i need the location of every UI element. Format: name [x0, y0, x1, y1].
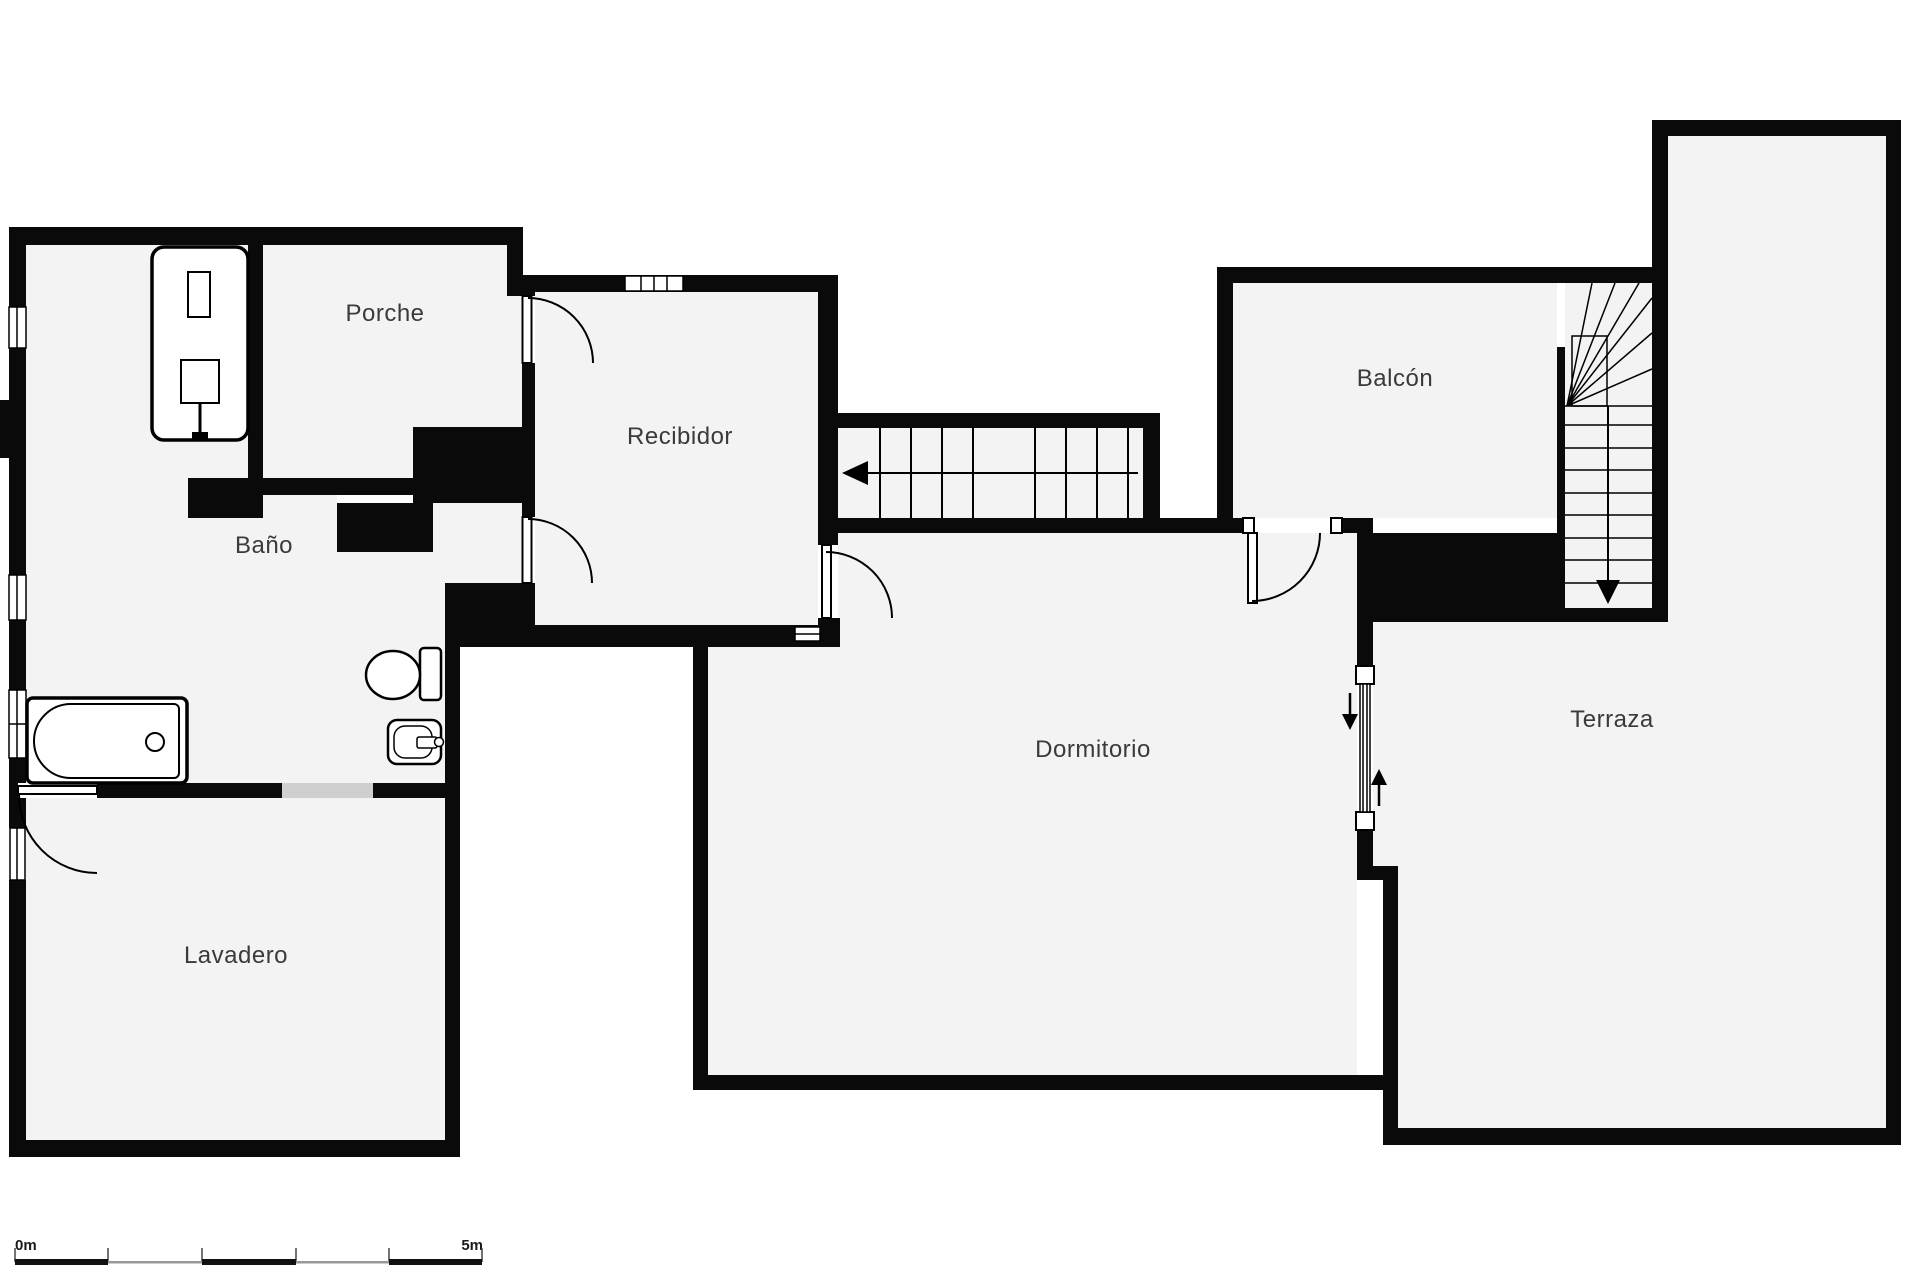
sliding-door-dormitorio-terraza [1356, 666, 1374, 830]
window-bano-left-2 [9, 575, 26, 620]
sink [388, 720, 444, 764]
window-lavadero-left [10, 828, 25, 880]
room-fills [26, 136, 1886, 1140]
label-balcon: Balcón [1357, 365, 1433, 392]
floorplan-canvas: Porche Baño Recibidor Lavadero Dormitori… [0, 0, 1920, 1280]
corridor-bano [433, 503, 522, 583]
room-lavadero [26, 798, 445, 1140]
floorplan-drawing: Porche Baño Recibidor Lavadero Dormitori… [0, 0, 1920, 1280]
label-bano: Baño [235, 532, 293, 559]
label-terraza: Terraza [1570, 706, 1654, 733]
shower [152, 247, 248, 440]
scale-start-label: 0m [15, 1237, 37, 1254]
room-recibidor [535, 292, 818, 625]
label-lavadero: Lavadero [184, 942, 288, 969]
bathtub [27, 698, 187, 783]
window-recibidor-top [625, 276, 683, 291]
label-porche: Porche [345, 300, 424, 327]
room-balcon [1233, 283, 1557, 518]
opening-bano-lavadero [282, 783, 373, 798]
window-bano-left-3 [9, 690, 26, 758]
scale-end-label: 5m [461, 1237, 483, 1254]
label-recibidor: Recibidor [627, 423, 733, 450]
toilet [366, 648, 441, 700]
label-dormitorio: Dormitorio [1035, 736, 1151, 763]
window-recibidor-bottom [795, 627, 820, 641]
window-bano-left-1 [9, 307, 26, 348]
scale-bar: 0m 5m [15, 1237, 483, 1265]
